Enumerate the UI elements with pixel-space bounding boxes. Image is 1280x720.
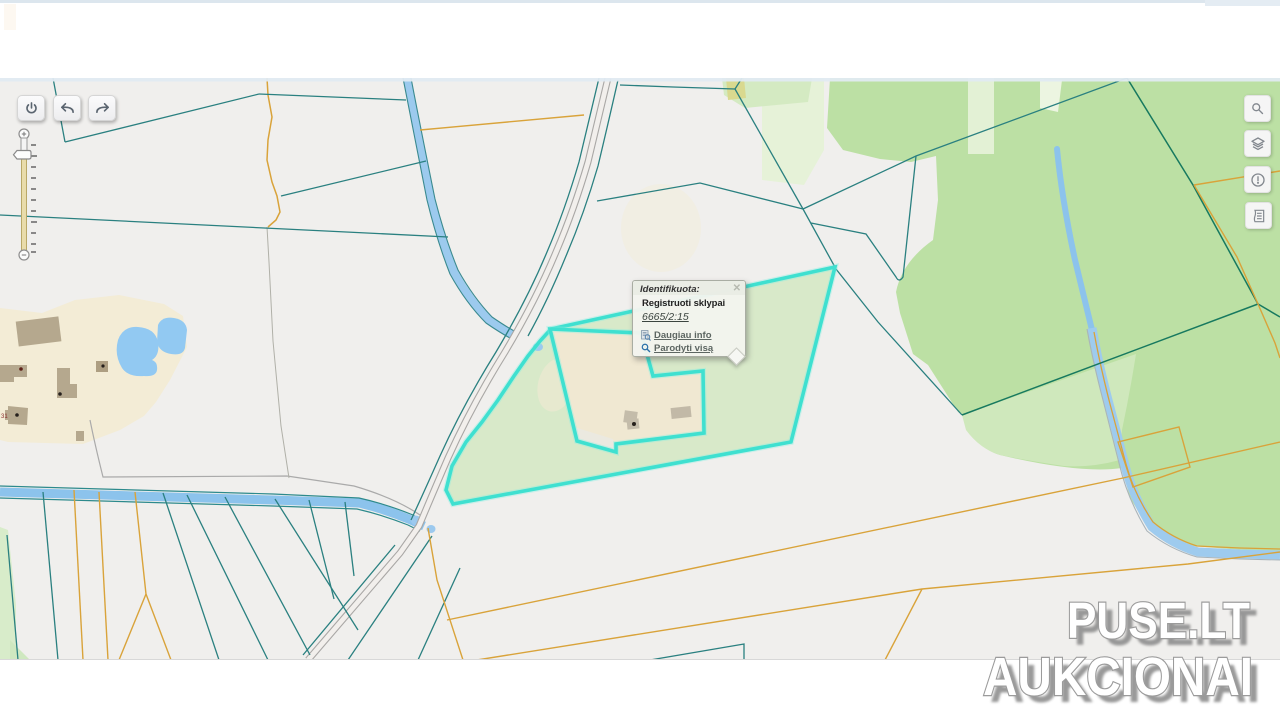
svg-text:31: 31: [1, 414, 8, 420]
svg-text:AUKCIONAI: AUKCIONAI: [983, 647, 1253, 707]
svg-text:PUSE.LT: PUSE.LT: [1067, 592, 1250, 649]
